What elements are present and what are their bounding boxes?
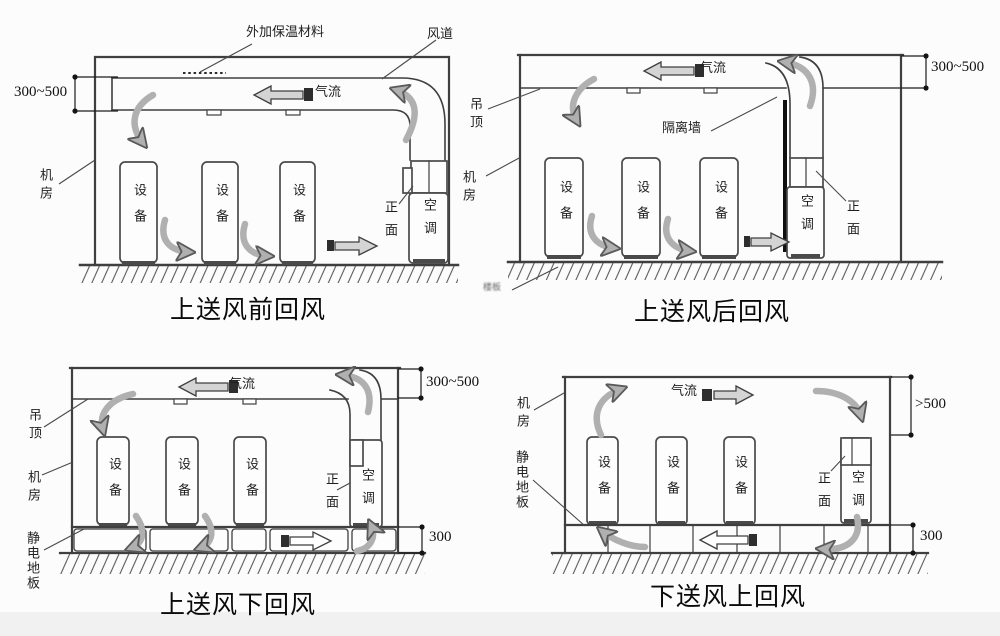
equipment-label: 设备 xyxy=(242,457,257,509)
dimension-label: >500 xyxy=(915,396,946,413)
ceiling-outlet xyxy=(627,88,640,93)
dimension-300 xyxy=(890,522,916,555)
raised-floor-leader xyxy=(533,480,585,526)
equipment-label: 设备 xyxy=(711,180,726,232)
room-label: 机房 xyxy=(24,470,39,506)
rising-return-arrow xyxy=(597,389,621,435)
equipment-label: 设备 xyxy=(105,457,120,509)
panel-title: 上送风后回风 xyxy=(602,292,822,328)
ceiling-outlet xyxy=(174,399,187,404)
dimension-label: 300~500 xyxy=(426,374,479,391)
duct-airflow-arrow-right xyxy=(702,386,753,404)
equipment-label: 设备 xyxy=(594,455,609,507)
equipment-label: 设备 xyxy=(289,183,304,235)
airflow-label: 气流 xyxy=(671,385,697,400)
panel-top-supply-rear-return xyxy=(486,53,942,290)
room-label: 机房 xyxy=(36,168,51,204)
ceiling-label: 吊顶 xyxy=(466,97,481,133)
room-leader xyxy=(42,462,73,475)
airflow-diagram-figure: 外加保温材料 风道 300~500 气流 机房 设备 设备 设备 正面 空调 上… xyxy=(0,0,1000,636)
floor-airflow-arrow-left xyxy=(700,531,757,549)
duct-leader xyxy=(382,40,436,79)
duct-upflow-arrow xyxy=(342,375,370,412)
equipment-label: 设备 xyxy=(130,183,145,235)
partition-label: 隔离墙 xyxy=(662,122,701,137)
dimension-label: 300 xyxy=(429,529,452,546)
equipment-label: 设备 xyxy=(731,455,746,507)
room-leader xyxy=(59,160,95,184)
dimension-label: 300~500 xyxy=(931,59,984,76)
panel-top-supply-front-return xyxy=(59,40,458,283)
supply-duct xyxy=(112,73,445,160)
ac-front-tab xyxy=(350,440,363,466)
equipment-label: 设备 xyxy=(663,455,678,507)
ceiling-outlet xyxy=(243,399,256,404)
ac-return-downflow-arrow xyxy=(816,391,861,416)
airflow-label: 气流 xyxy=(229,378,255,393)
ceiling-leader xyxy=(488,89,540,109)
dimension-label: 300~500 xyxy=(14,84,67,101)
front-label: 正面 xyxy=(843,199,858,245)
ceiling-outlet xyxy=(704,88,717,93)
ac-return-grille xyxy=(841,438,871,465)
duct-airflow-arrow-left xyxy=(644,62,704,80)
raised-floor xyxy=(72,527,398,551)
ground-hatching xyxy=(80,266,458,283)
front-leader xyxy=(337,483,350,490)
cabinet-exhaust-arrow xyxy=(590,216,614,248)
dimension-300 xyxy=(398,524,425,555)
equipment-label: 设备 xyxy=(174,457,189,509)
airflow-label: 气流 xyxy=(700,62,726,77)
ground-hatching xyxy=(508,263,942,280)
floor-airflow-arrow-right xyxy=(744,233,789,251)
floor-tile xyxy=(150,529,228,551)
ac-label: 空调 xyxy=(848,470,863,516)
front-label: 正面 xyxy=(322,472,337,518)
cabinet-exhaust-arrow xyxy=(666,219,690,251)
duct-outlet xyxy=(286,110,300,115)
supply-downflow-arrow xyxy=(573,79,594,121)
ground-hatching xyxy=(60,554,425,574)
front-label: 正面 xyxy=(814,471,829,517)
room-leader xyxy=(534,393,564,410)
equipment-label: 设备 xyxy=(556,180,571,232)
ac-label: 空调 xyxy=(797,194,812,240)
duct-airflow-arrow-left xyxy=(254,86,313,104)
airflow-label: 气流 xyxy=(315,86,341,101)
dimension-300-500 xyxy=(901,53,929,90)
panel-title: 上送风前回风 xyxy=(138,290,358,326)
raised-floor-label: 静电地板 xyxy=(512,450,527,510)
return-duct xyxy=(766,57,823,158)
equipment-label: 设备 xyxy=(633,180,648,232)
room-leader xyxy=(486,157,521,176)
ac-label: 空调 xyxy=(358,468,373,514)
dimension-label: 300 xyxy=(920,528,943,545)
room-label: 机房 xyxy=(513,396,528,432)
ceiling-label: 吊顶 xyxy=(25,408,40,444)
dimension-300-500 xyxy=(398,366,424,400)
floor-tile xyxy=(232,529,266,551)
dimension-gt500 xyxy=(891,374,914,437)
raised-floor-label: 静电地板 xyxy=(23,531,38,591)
return-upflow-arrow xyxy=(784,62,813,106)
panel-title: 上送风下回风 xyxy=(128,585,348,621)
front-label: 正面 xyxy=(381,200,396,246)
floor-airflow-arrow-right xyxy=(327,237,377,255)
insulation-label: 外加保温材料 xyxy=(246,26,324,41)
duct-outlet xyxy=(207,110,221,115)
room-label: 机房 xyxy=(459,170,474,206)
partition-leader xyxy=(711,97,777,131)
panel-title: 下送风上回风 xyxy=(618,577,838,613)
ground-hatching xyxy=(552,554,928,574)
supply-downflow-arrow xyxy=(135,95,153,143)
equipment-label: 设备 xyxy=(212,183,227,235)
duct-label: 风道 xyxy=(427,28,453,43)
ac-label: 空调 xyxy=(420,198,435,244)
cabinet-exhaust-arrow xyxy=(243,224,268,256)
cabinet-exhaust-arrow xyxy=(163,220,189,252)
ceiling-leader xyxy=(44,399,88,427)
floor-slab-label: 楼板 xyxy=(483,283,501,293)
return-upflow-arrow xyxy=(396,90,415,140)
